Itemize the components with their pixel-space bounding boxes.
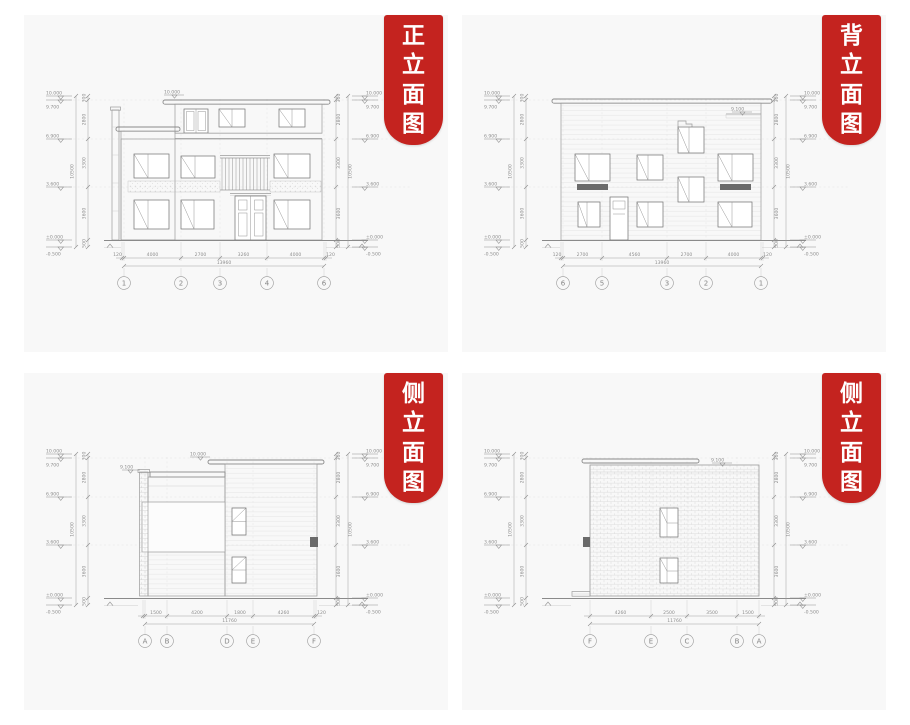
svg-text:±0.000: ±0.000	[46, 234, 63, 240]
title-char: 立	[402, 409, 425, 437]
title-char: 立	[840, 409, 863, 437]
svg-text:10500: 10500	[70, 164, 76, 179]
dim-label: 120	[553, 252, 562, 258]
title-char: 面	[840, 81, 863, 109]
svg-text:10.000: 10.000	[804, 90, 820, 96]
svg-text:3.600: 3.600	[46, 181, 59, 187]
svg-text:3600: 3600	[336, 566, 342, 578]
svg-text:1: 1	[122, 279, 126, 287]
title-ribbon-side-left: 侧 立 面 图	[384, 373, 443, 503]
bottom-dimensions: 4260 2500 3500 1500 11760 F E C B A	[584, 600, 766, 647]
title-char: 立	[402, 51, 425, 79]
svg-text:3300: 3300	[520, 515, 526, 527]
svg-text:300: 300	[336, 94, 342, 103]
total-dim-label: 11760	[667, 618, 682, 624]
ground-line	[104, 599, 368, 606]
left-elevation-column: 300 2800 3300 3600 500 10500 10.000 9.70…	[484, 448, 528, 615]
svg-text:F: F	[588, 637, 592, 645]
right-elevation-column: 300 2800 3300 3600 500 10500 10.000 9.70…	[334, 448, 383, 615]
svg-text:3600: 3600	[82, 566, 88, 578]
svg-text:3300: 3300	[82, 515, 88, 527]
svg-text:-0.500: -0.500	[804, 252, 819, 258]
svg-text:3600: 3600	[520, 208, 526, 220]
left-elevation-column: 300 2800 3300 3600 500 10500 10.000 9.70…	[46, 90, 90, 257]
svg-text:3300: 3300	[82, 157, 88, 169]
total-dim-label: 11760	[222, 618, 237, 624]
svg-text:3300: 3300	[336, 515, 342, 527]
svg-text:D: D	[224, 637, 229, 645]
svg-text:2800: 2800	[774, 472, 780, 484]
svg-text:A: A	[143, 637, 148, 645]
svg-text:5: 5	[600, 279, 604, 287]
svg-text:9.700: 9.700	[484, 105, 497, 111]
svg-text:3600: 3600	[774, 208, 780, 220]
svg-text:3: 3	[218, 279, 222, 287]
svg-text:10.000: 10.000	[804, 448, 820, 454]
svg-text:3300: 3300	[774, 157, 780, 169]
svg-text:±0.000: ±0.000	[484, 234, 501, 240]
svg-text:300: 300	[336, 452, 342, 461]
svg-text:3300: 3300	[520, 157, 526, 169]
panel-back-elevation: 120 2700 4560 2700 4000 120 13960 6 5 3 …	[462, 15, 886, 352]
svg-text:9.100: 9.100	[731, 106, 744, 112]
svg-text:9.700: 9.700	[46, 463, 59, 469]
svg-text:10.000: 10.000	[164, 89, 180, 95]
title-char: 侧	[402, 380, 425, 408]
bottom-dimensions: 120 2700 4560 2700 4000 120 13960 6 5 3 …	[553, 242, 772, 289]
axis-bubbles: F E C B A	[584, 635, 766, 648]
svg-text:500: 500	[82, 239, 88, 248]
axis-bubbles: 1 2 3 4 6	[118, 277, 331, 290]
svg-text:3.600: 3.600	[366, 181, 379, 187]
svg-text:9.100: 9.100	[120, 464, 133, 470]
dim-label: 120	[113, 252, 122, 258]
svg-text:3600: 3600	[520, 566, 526, 578]
dim-label: 2700	[195, 252, 207, 258]
left-elevation-column: 300 2800 3300 3600 500 10500 10.000 9.70…	[484, 90, 528, 257]
title-char: 背	[840, 22, 863, 50]
svg-text:-0.500: -0.500	[484, 252, 499, 258]
svg-text:500: 500	[774, 239, 780, 248]
svg-text:E: E	[649, 637, 653, 645]
svg-text:9.700: 9.700	[366, 105, 379, 111]
svg-text:10.000: 10.000	[484, 448, 500, 454]
building-front	[111, 100, 331, 240]
svg-text:500: 500	[336, 597, 342, 606]
dim-label: 120	[326, 252, 335, 258]
svg-text:10.000: 10.000	[190, 451, 206, 457]
svg-text:2800: 2800	[82, 472, 88, 484]
parapet-elevation-marker: 9.100	[120, 464, 140, 473]
svg-text:3.600: 3.600	[484, 539, 497, 545]
dim-label: 120	[317, 610, 326, 616]
svg-text:3300: 3300	[774, 515, 780, 527]
svg-text:2800: 2800	[520, 472, 526, 484]
svg-text:F: F	[312, 637, 316, 645]
svg-text:300: 300	[520, 452, 526, 461]
svg-text:9.700: 9.700	[484, 463, 497, 469]
title-char: 面	[840, 439, 863, 467]
svg-text:500: 500	[520, 239, 526, 248]
svg-text:6.900: 6.900	[366, 491, 379, 497]
dim-label: 3500	[706, 610, 718, 616]
ground-line	[542, 241, 806, 248]
svg-text:10500: 10500	[70, 522, 76, 537]
dim-label: 4560	[629, 252, 641, 258]
dim-label: 2700	[577, 252, 589, 258]
title-char: 图	[840, 110, 863, 138]
svg-text:300: 300	[82, 94, 88, 103]
svg-text:500: 500	[82, 597, 88, 606]
svg-text:10500: 10500	[786, 522, 792, 537]
title-char: 正	[402, 22, 425, 50]
svg-text:C: C	[685, 637, 690, 645]
svg-text:-0.500: -0.500	[46, 610, 61, 616]
svg-text:±0.000: ±0.000	[804, 592, 821, 598]
svg-text:3600: 3600	[774, 566, 780, 578]
svg-text:300: 300	[774, 452, 780, 461]
title-char: 面	[402, 439, 425, 467]
svg-text:6: 6	[561, 279, 566, 287]
svg-text:6.900: 6.900	[804, 133, 817, 139]
svg-text:6.900: 6.900	[46, 491, 59, 497]
svg-text:9.100: 9.100	[711, 457, 724, 463]
svg-text:3.600: 3.600	[804, 539, 817, 545]
panel-side-elevation-left: 1500 4200 1800 4260 120 11760 A B D E F	[24, 373, 448, 710]
svg-text:3.600: 3.600	[46, 539, 59, 545]
svg-text:3600: 3600	[336, 208, 342, 220]
svg-text:6: 6	[322, 279, 327, 287]
svg-text:B: B	[735, 637, 740, 645]
svg-text:3.600: 3.600	[366, 539, 379, 545]
svg-text:300: 300	[520, 94, 526, 103]
svg-text:9.700: 9.700	[366, 463, 379, 469]
title-ribbon-front: 正 立 面 图	[384, 15, 443, 145]
elevation-sheet: 120 4000 2700 3260 4000 120 13960 1 2 3 …	[0, 0, 910, 725]
dim-label: 4000	[728, 252, 740, 258]
svg-text:6.900: 6.900	[804, 491, 817, 497]
dim-label: 2700	[681, 252, 693, 258]
svg-text:3: 3	[665, 279, 669, 287]
dim-label: 120	[763, 252, 772, 258]
svg-text:-0.500: -0.500	[366, 610, 381, 616]
svg-text:10.000: 10.000	[366, 90, 382, 96]
svg-text:±0.000: ±0.000	[366, 592, 383, 598]
dim-label: 4000	[147, 252, 159, 258]
svg-text:6.900: 6.900	[484, 133, 497, 139]
svg-text:-0.500: -0.500	[484, 610, 499, 616]
svg-text:500: 500	[774, 597, 780, 606]
left-elevation-column: 300 2800 3300 3600 500 10500 10.000 9.70…	[46, 448, 90, 615]
svg-text:3.600: 3.600	[804, 181, 817, 187]
title-char: 侧	[840, 380, 863, 408]
total-dim-label: 13960	[217, 260, 232, 266]
svg-text:300: 300	[82, 452, 88, 461]
svg-text:6.900: 6.900	[46, 133, 59, 139]
svg-text:±0.000: ±0.000	[804, 234, 821, 240]
bottom-dimensions: 1500 4200 1800 4260 120 11760 A B D E F	[138, 600, 326, 647]
svg-text:±0.000: ±0.000	[46, 592, 63, 598]
svg-text:2800: 2800	[336, 472, 342, 484]
svg-text:2: 2	[704, 279, 708, 287]
building-side-right	[572, 459, 759, 596]
svg-text:10500: 10500	[508, 522, 514, 537]
svg-text:10500: 10500	[348, 522, 354, 537]
title-char: 立	[840, 51, 863, 79]
title-ribbon-side-right: 侧 立 面 图	[822, 373, 881, 503]
dim-label: 1500	[150, 610, 162, 616]
svg-text:1: 1	[759, 279, 763, 287]
svg-text:±0.000: ±0.000	[366, 234, 383, 240]
axis-bubbles: 6 5 3 2 1	[557, 277, 768, 290]
roof-elevation-marker: 10.000	[164, 89, 184, 98]
svg-text:300: 300	[774, 94, 780, 103]
svg-text:9.700: 9.700	[804, 105, 817, 111]
svg-text:10500: 10500	[508, 164, 514, 179]
svg-text:9.700: 9.700	[46, 105, 59, 111]
svg-text:2800: 2800	[82, 114, 88, 126]
svg-text:4: 4	[265, 279, 270, 287]
svg-text:-0.500: -0.500	[804, 610, 819, 616]
svg-text:6.900: 6.900	[366, 133, 379, 139]
svg-text:E: E	[251, 637, 255, 645]
dim-label: 3260	[238, 252, 250, 258]
svg-text:-0.500: -0.500	[46, 252, 61, 258]
dim-label: 4260	[615, 610, 627, 616]
svg-text:10.000: 10.000	[46, 448, 62, 454]
svg-text:500: 500	[336, 239, 342, 248]
title-char: 图	[840, 468, 863, 496]
building-back	[552, 99, 772, 240]
ground-line	[542, 599, 806, 606]
right-elevation-column: 300 2800 3300 3600 500 10500 10.000 9.70…	[772, 90, 821, 257]
svg-text:10.000: 10.000	[484, 90, 500, 96]
dim-label: 4000	[290, 252, 302, 258]
svg-text:-0.500: -0.500	[366, 252, 381, 258]
dim-label: 4260	[278, 610, 290, 616]
svg-text:10500: 10500	[348, 164, 354, 179]
svg-text:3.600: 3.600	[484, 181, 497, 187]
svg-text:10500: 10500	[786, 164, 792, 179]
svg-text:9.700: 9.700	[804, 463, 817, 469]
svg-text:10.000: 10.000	[366, 448, 382, 454]
dim-label: 1800	[234, 610, 246, 616]
roof-elevation-marker: 10.000	[190, 451, 210, 460]
title-char: 图	[402, 110, 425, 138]
right-elevation-column: 300 2800 3300 3600 500 10500 10.000 9.70…	[334, 90, 383, 257]
svg-text:A: A	[757, 637, 762, 645]
svg-text:3600: 3600	[82, 208, 88, 220]
total-dim-label: 13960	[655, 260, 670, 266]
axis-bubbles: A B D E F	[139, 635, 321, 648]
bottom-dimensions: 120 4000 2700 3260 4000 120 13960 1 2 3 …	[113, 242, 335, 289]
svg-text:±0.000: ±0.000	[484, 592, 501, 598]
panel-front-elevation: 120 4000 2700 3260 4000 120 13960 1 2 3 …	[24, 15, 448, 352]
ground-line	[104, 241, 368, 248]
svg-text:3300: 3300	[336, 157, 342, 169]
right-elevation-column: 300 2800 3300 3600 500 10500 10.000 9.70…	[772, 448, 821, 615]
svg-text:6.900: 6.900	[484, 491, 497, 497]
dim-label: 4200	[191, 610, 203, 616]
title-ribbon-back: 背 立 面 图	[822, 15, 881, 145]
panel-side-elevation-right: 4260 2500 3500 1500 11760 F E C B A	[462, 373, 886, 710]
dim-label: 2500	[663, 610, 675, 616]
dim-label: 1500	[742, 610, 754, 616]
svg-text:B: B	[165, 637, 170, 645]
svg-text:10.000: 10.000	[46, 90, 62, 96]
building-side-left	[138, 460, 324, 596]
svg-text:2800: 2800	[774, 114, 780, 126]
svg-text:500: 500	[520, 597, 526, 606]
svg-text:2: 2	[179, 279, 183, 287]
title-char: 面	[402, 81, 425, 109]
svg-text:2800: 2800	[520, 114, 526, 126]
svg-text:2800: 2800	[336, 114, 342, 126]
title-char: 图	[402, 468, 425, 496]
